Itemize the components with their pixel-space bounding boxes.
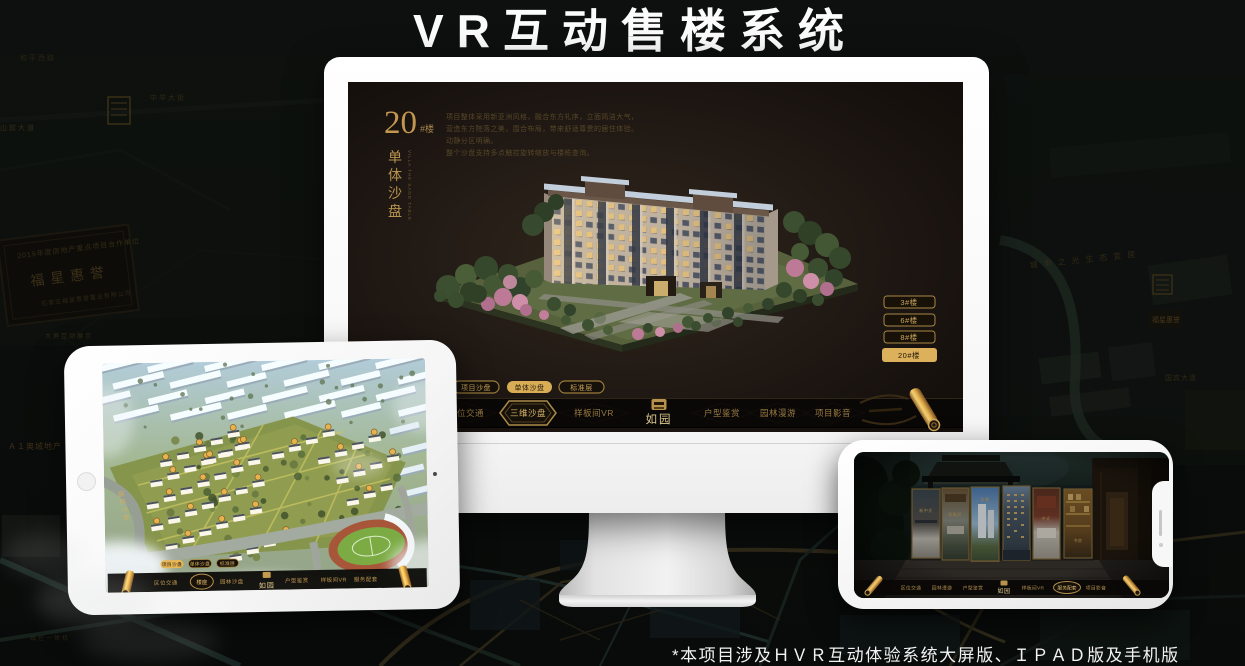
svg-text:项目影音: 项目影音 xyxy=(815,408,851,418)
svg-text:服务配套: 服务配套 xyxy=(1057,585,1076,592)
svg-text:单体沙盘: 单体沙盘 xyxy=(515,383,545,392)
svg-text:6#楼: 6#楼 xyxy=(900,315,917,325)
svg-text:福星惠誉: 福星惠誉 xyxy=(1152,315,1180,324)
svg-text:#楼: #楼 xyxy=(420,123,434,134)
svg-text:区位交通: 区位交通 xyxy=(901,585,921,592)
svg-text:项目整体采用新亚洲风格，融合东方礼序，立面简洁大气，: 项目整体采用新亚洲风格，融合东方礼序，立面简洁大气， xyxy=(446,112,638,121)
svg-text:园林漫游: 园林漫游 xyxy=(932,585,952,592)
svg-text:如园: 如园 xyxy=(997,587,1010,595)
svg-text:户型鉴赏: 户型鉴赏 xyxy=(704,408,740,418)
svg-text:8#楼: 8#楼 xyxy=(900,332,917,342)
svg-text:样板间VR: 样板间VR xyxy=(1022,585,1045,592)
svg-text:大屏互动展示: 大屏互动展示 xyxy=(45,332,93,340)
svg-text:Ａ１奥城地产: Ａ１奥城地产 xyxy=(8,441,62,451)
svg-text:整个沙盘支持多点触控旋转缩放与楼栋查询。: 整个沙盘支持多点触控旋转缩放与楼栋查询。 xyxy=(446,148,594,157)
svg-text:20#楼: 20#楼 xyxy=(898,350,920,360)
svg-text:20: 20 xyxy=(384,105,417,141)
svg-text:国宾大道: 国宾大道 xyxy=(1165,373,1197,382)
svg-text:项目影音: 项目影音 xyxy=(1086,585,1106,592)
svg-text:山前大道: 山前大道 xyxy=(0,123,36,132)
svg-text:营造东方院落之美，围合布局，带来舒适尊贵的居住体验。: 营造东方院落之美，围合布局，带来舒适尊贵的居住体验。 xyxy=(446,124,638,133)
svg-text:动静分区明确。: 动静分区明确。 xyxy=(446,136,498,145)
svg-text:VILLA THE SAND TABLE: VILLA THE SAND TABLE xyxy=(407,150,412,221)
svg-text:盘: 盘 xyxy=(388,203,402,220)
svg-text:园林漫游: 园林漫游 xyxy=(760,408,796,418)
svg-text:样板间VR: 样板间VR xyxy=(574,408,614,418)
svg-text:如园: 如园 xyxy=(646,412,673,426)
svg-text:中华大街: 中华大街 xyxy=(150,93,186,102)
svg-text:项目沙盘: 项目沙盘 xyxy=(461,383,491,392)
svg-text:体: 体 xyxy=(388,168,402,184)
svg-text:三维沙盘: 三维沙盘 xyxy=(510,408,546,418)
svg-text:单: 单 xyxy=(388,150,402,166)
svg-text:户型鉴赏: 户型鉴赏 xyxy=(963,585,983,592)
svg-text:标准层: 标准层 xyxy=(570,383,593,392)
svg-text:3#楼: 3#楼 xyxy=(900,297,917,307)
svg-text:沙: 沙 xyxy=(388,187,402,202)
